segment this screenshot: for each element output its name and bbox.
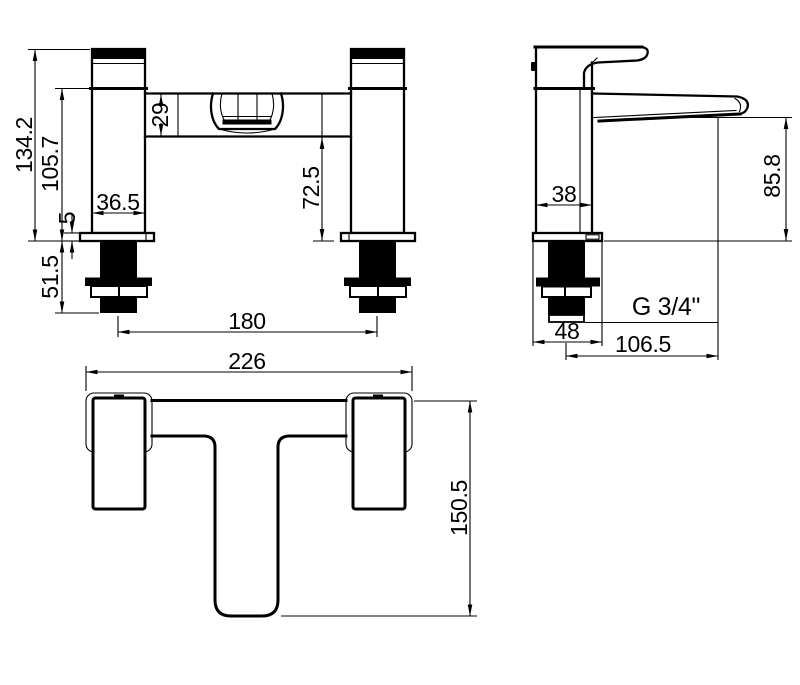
dim-crossbar-to-deck: 72.5 xyxy=(298,166,324,210)
dim-body-width: 36.5 xyxy=(96,189,140,215)
thread-size-label: G 3/4" xyxy=(632,293,700,321)
left-base-plate xyxy=(80,233,154,241)
plan-view: 226 150.5 xyxy=(86,348,477,616)
drawing-svg: 134.2 105.7 51.5 5 36.5 29 72.5 xyxy=(0,0,800,685)
dim-spout-height: 85.8 xyxy=(759,154,785,198)
front-right-tap-body xyxy=(341,49,415,241)
right-base-plate xyxy=(341,233,415,241)
dim-spout-reach: 106.5 xyxy=(615,331,671,357)
front-right-shank xyxy=(344,241,411,313)
dim-overall-width: 226 xyxy=(228,348,265,374)
left-handle-cap xyxy=(92,49,145,59)
dim-crossbar-height: 29 xyxy=(147,103,173,128)
dim-plate-thickness: 5 xyxy=(54,212,80,225)
dim-tap-centres: 180 xyxy=(228,308,265,334)
right-handle-cap xyxy=(351,49,404,59)
plan-right-handle xyxy=(353,398,405,509)
side-body xyxy=(533,88,602,241)
side-view: 38 48 G 3/4" 106.5 85.8 xyxy=(531,47,792,360)
side-spout xyxy=(592,94,748,122)
front-spout-outlet xyxy=(211,94,283,134)
technical-drawing: 134.2 105.7 51.5 5 36.5 29 72.5 xyxy=(0,0,800,685)
dim-below-deck: 51.5 xyxy=(37,255,63,299)
front-view: 134.2 105.7 51.5 5 36.5 29 72.5 xyxy=(11,49,415,337)
dim-total-height: 134.2 xyxy=(11,117,37,173)
dim-overall-depth: 150.5 xyxy=(446,480,472,536)
dim-plate-depth: 48 xyxy=(555,318,580,344)
dim-body-depth: 38 xyxy=(552,181,577,207)
dim-body-height: 105.7 xyxy=(37,136,63,192)
side-handle-lever xyxy=(531,47,648,89)
plan-body xyxy=(86,393,412,616)
handle-pin xyxy=(531,62,537,71)
plan-spout-stem xyxy=(152,436,346,616)
plan-left-handle xyxy=(93,398,145,509)
side-shank xyxy=(536,241,600,322)
front-left-shank xyxy=(85,241,152,313)
